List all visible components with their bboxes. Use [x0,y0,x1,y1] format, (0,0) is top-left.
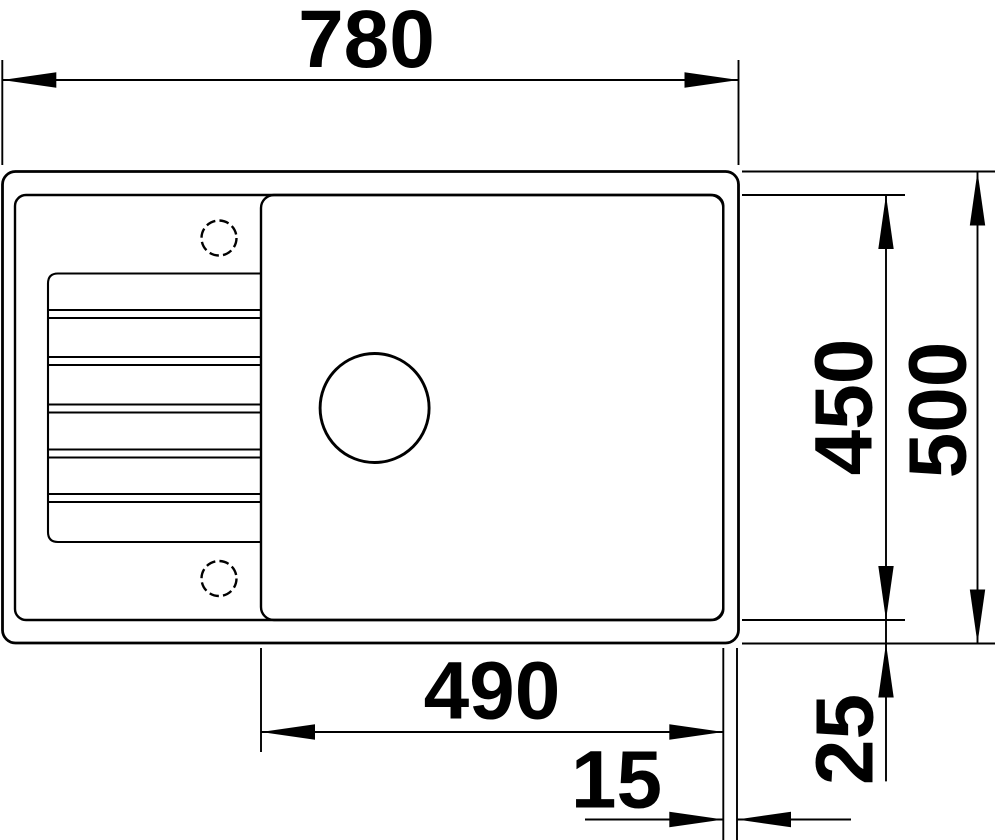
svg-text:25: 25 [800,694,891,785]
svg-text:490: 490 [424,646,561,737]
svg-text:15: 15 [571,735,662,826]
svg-text:780: 780 [298,0,435,85]
svg-text:500: 500 [893,342,984,479]
svg-text:450: 450 [799,339,890,476]
